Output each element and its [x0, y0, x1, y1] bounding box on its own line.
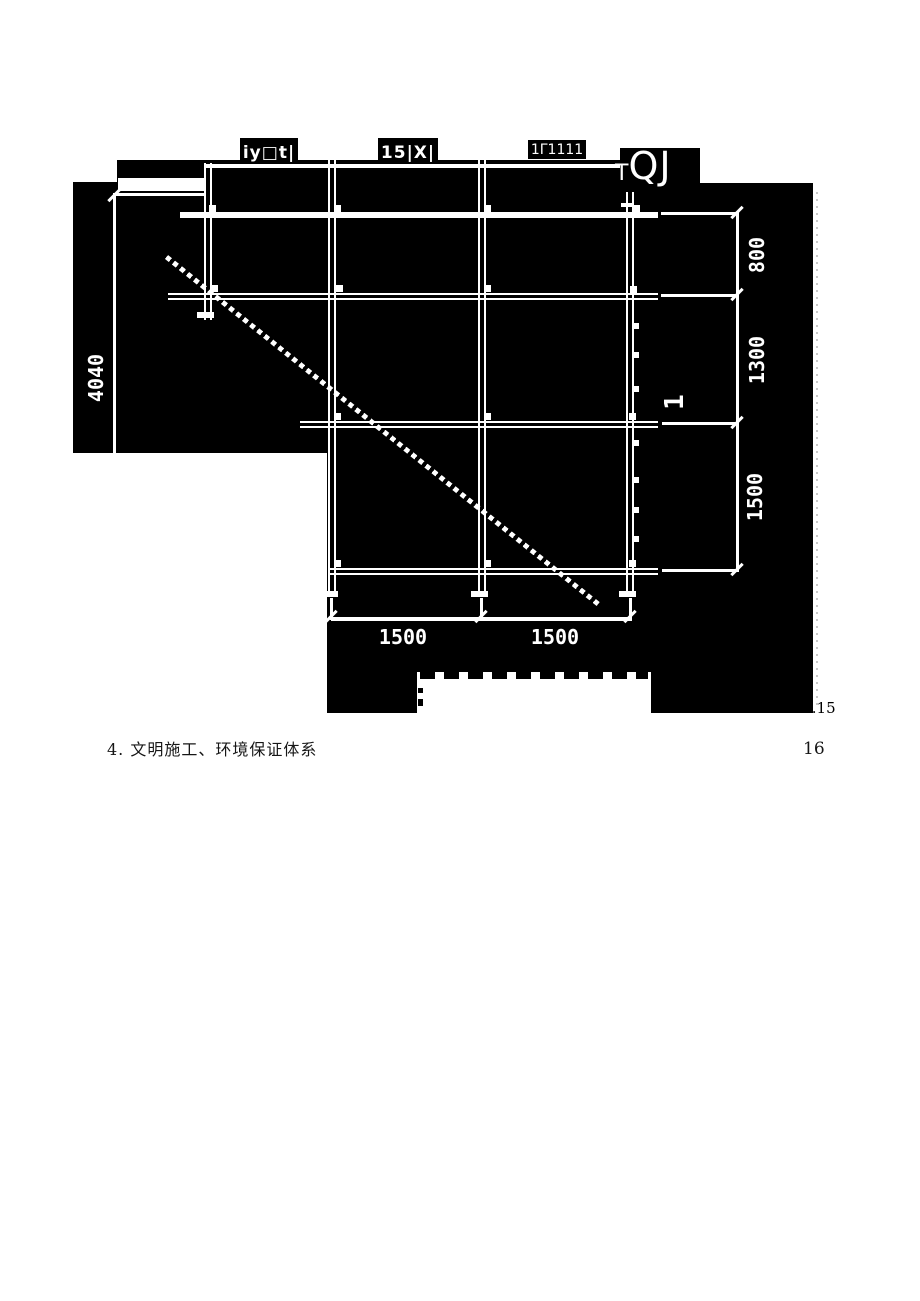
- clamp: [484, 205, 491, 212]
- top-box-label-1: iy□t|: [240, 138, 298, 168]
- tqj-small-t: T: [615, 163, 628, 185]
- caption-left-mark-1: [418, 688, 423, 693]
- pole-2-base: [321, 591, 338, 597]
- corner-note: ..15: [807, 699, 836, 717]
- clamp: [633, 205, 640, 212]
- clamp: [334, 560, 341, 567]
- right-dim-line: [736, 212, 739, 572]
- page-number: 16: [803, 739, 825, 759]
- left-dim-line: [113, 194, 116, 453]
- pole-3: [478, 160, 486, 597]
- dim-right-1500: 1500: [744, 467, 766, 527]
- dim-inner-mark: 1: [664, 382, 688, 422]
- dim-right-800: 800: [746, 225, 768, 285]
- clamp: [209, 205, 216, 212]
- right-extension-4: [662, 569, 739, 572]
- document-page: iy□t| 15|X| 1Γ1111 TQJ 4040 800 1300 150…: [0, 0, 920, 1301]
- ledger-2: [168, 293, 658, 300]
- tqj-large-qj: QJ: [628, 147, 671, 185]
- pole-2: [328, 160, 336, 597]
- clamp: [629, 413, 636, 420]
- top-left-notch: [118, 178, 205, 191]
- pole-4-bump: [633, 507, 639, 513]
- pole-4-bump: [633, 323, 639, 329]
- pole-3-base: [471, 591, 488, 597]
- pole-4-bump: [633, 536, 639, 542]
- clamp: [484, 560, 491, 567]
- clamp: [630, 286, 637, 293]
- right-extension-3: [662, 422, 739, 425]
- caption-left-mark-2: [418, 699, 423, 706]
- clamp: [336, 285, 343, 292]
- ledger-4: [328, 568, 658, 575]
- pole-4-bump: [633, 386, 639, 392]
- pole-4-bump: [633, 477, 639, 483]
- clamp: [484, 413, 491, 420]
- pole-1-base: [197, 312, 214, 318]
- scan-noise-dots: [816, 192, 818, 710]
- dim-right-1300: 1300: [746, 330, 768, 390]
- left-dim-extension: [113, 193, 205, 196]
- right-extension-1: [661, 212, 739, 215]
- dim-bottom-1500-b: 1500: [524, 626, 586, 648]
- pole-4-bump: [633, 440, 639, 446]
- top-box-label-3: 1Γ1111: [528, 140, 586, 159]
- pole-4-base: [619, 591, 636, 597]
- right-extension-2: [661, 294, 739, 297]
- section-heading: 4. 文明施工、环境保证体系: [107, 736, 317, 760]
- clamp: [334, 205, 341, 212]
- dim-bottom-1500-a: 1500: [372, 626, 434, 648]
- pole-4-bump: [633, 352, 639, 358]
- ledger-1: [180, 212, 658, 218]
- clamp: [629, 560, 636, 567]
- clamp: [484, 285, 491, 292]
- tqj-corner-label: TQJ: [615, 145, 705, 185]
- caption-text-remnants: [420, 672, 648, 679]
- clamp: [334, 413, 341, 420]
- top-box-label-2: 15|X|: [378, 138, 438, 168]
- dim-left-4040: 4040: [85, 332, 107, 424]
